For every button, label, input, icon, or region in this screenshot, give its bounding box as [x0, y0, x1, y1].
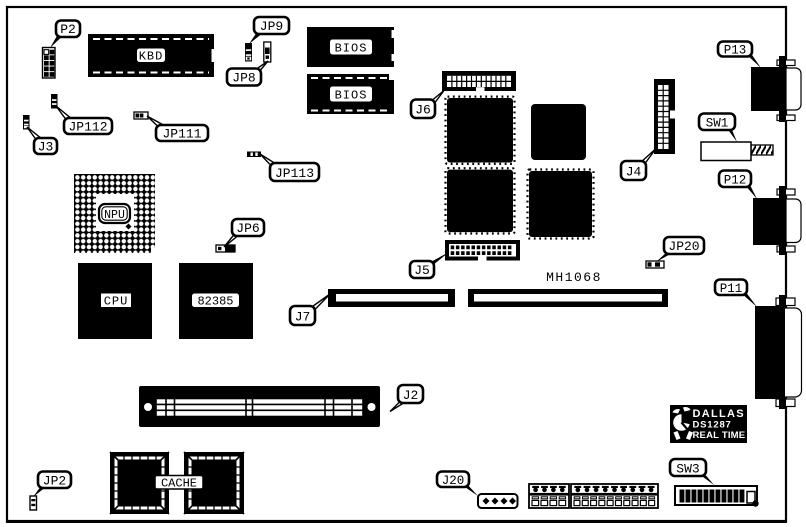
- svg-text:J20: J20: [442, 474, 465, 488]
- svg-text:JP20: JP20: [668, 239, 699, 254]
- svg-text:DS1287: DS1287: [693, 420, 732, 431]
- svg-text:JP6: JP6: [236, 221, 259, 236]
- svg-text:J4: J4: [626, 165, 642, 180]
- svg-text:REAL TIME: REAL TIME: [693, 430, 746, 441]
- svg-text:JP111: JP111: [162, 127, 201, 142]
- svg-text:J3: J3: [38, 140, 54, 155]
- svg-text:P2: P2: [60, 22, 76, 37]
- svg-text:P12: P12: [724, 174, 747, 188]
- svg-text:BIOS: BIOS: [335, 89, 368, 103]
- svg-text:NPU: NPU: [104, 209, 125, 222]
- svg-text:JP2: JP2: [43, 474, 66, 489]
- svg-text:P11: P11: [720, 282, 743, 296]
- svg-text:J7: J7: [295, 310, 311, 325]
- svg-text:JP8: JP8: [232, 71, 255, 86]
- svg-text:P13: P13: [724, 43, 747, 57]
- svg-text:MH1068: MH1068: [546, 270, 602, 285]
- svg-text:82385: 82385: [197, 295, 233, 309]
- svg-text:KBD: KBD: [139, 50, 164, 64]
- svg-text:JP9: JP9: [260, 19, 283, 34]
- svg-text:BIOS: BIOS: [335, 42, 368, 56]
- svg-text:SW3: SW3: [676, 461, 699, 476]
- svg-text:J5: J5: [414, 263, 430, 278]
- svg-text:J2: J2: [403, 388, 419, 403]
- svg-text:SW1: SW1: [706, 116, 729, 130]
- svg-text:CACHE: CACHE: [161, 477, 197, 491]
- svg-text:CPU: CPU: [104, 295, 129, 309]
- svg-text:JP112: JP112: [68, 120, 107, 135]
- svg-text:JP113: JP113: [275, 166, 314, 181]
- svg-text:DALLAS: DALLAS: [693, 408, 745, 420]
- svg-text:J6: J6: [415, 103, 431, 118]
